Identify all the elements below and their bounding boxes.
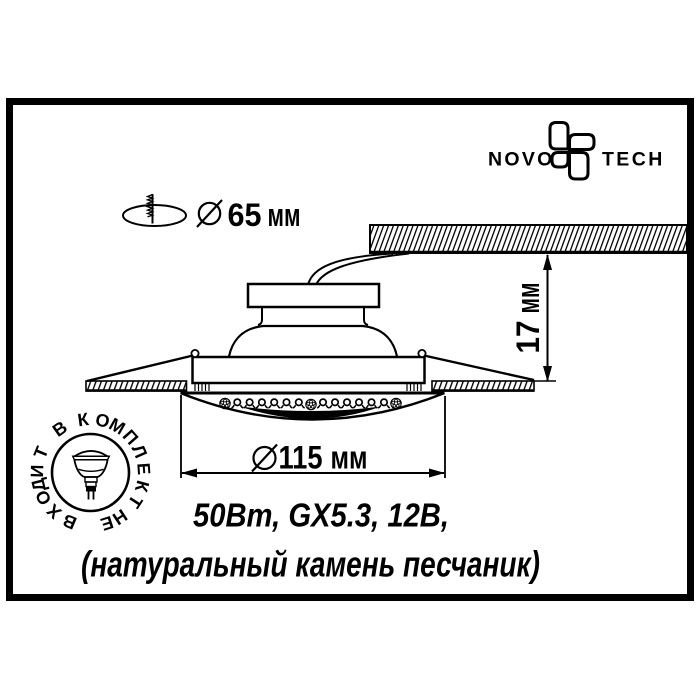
svg-text:В: В: [49, 417, 71, 441]
svg-text:65: 65: [228, 197, 262, 233]
svg-text:К: К: [131, 478, 153, 495]
svg-text:(натуральный камень песчаник): (натуральный камень песчаник): [81, 544, 540, 585]
svg-text:17: 17: [510, 321, 546, 354]
svg-text:NOVO: NOVO: [488, 149, 555, 171]
svg-text:Т: Т: [124, 491, 147, 511]
svg-text:мм: мм: [268, 197, 301, 233]
svg-text:Т: Т: [30, 444, 53, 462]
svg-text:В: В: [60, 510, 80, 533]
svg-text:мм: мм: [331, 440, 368, 476]
svg-text:50Вт, GX5.3, 12В,: 50Вт, GX5.3, 12В,: [193, 498, 449, 535]
svg-text:115: 115: [279, 440, 323, 476]
svg-text:К: К: [76, 409, 91, 430]
svg-text:мм: мм: [510, 283, 546, 314]
svg-text:TECH: TECH: [602, 149, 665, 171]
svg-text:Е: Е: [133, 462, 154, 475]
svg-text:И: И: [27, 464, 47, 477]
